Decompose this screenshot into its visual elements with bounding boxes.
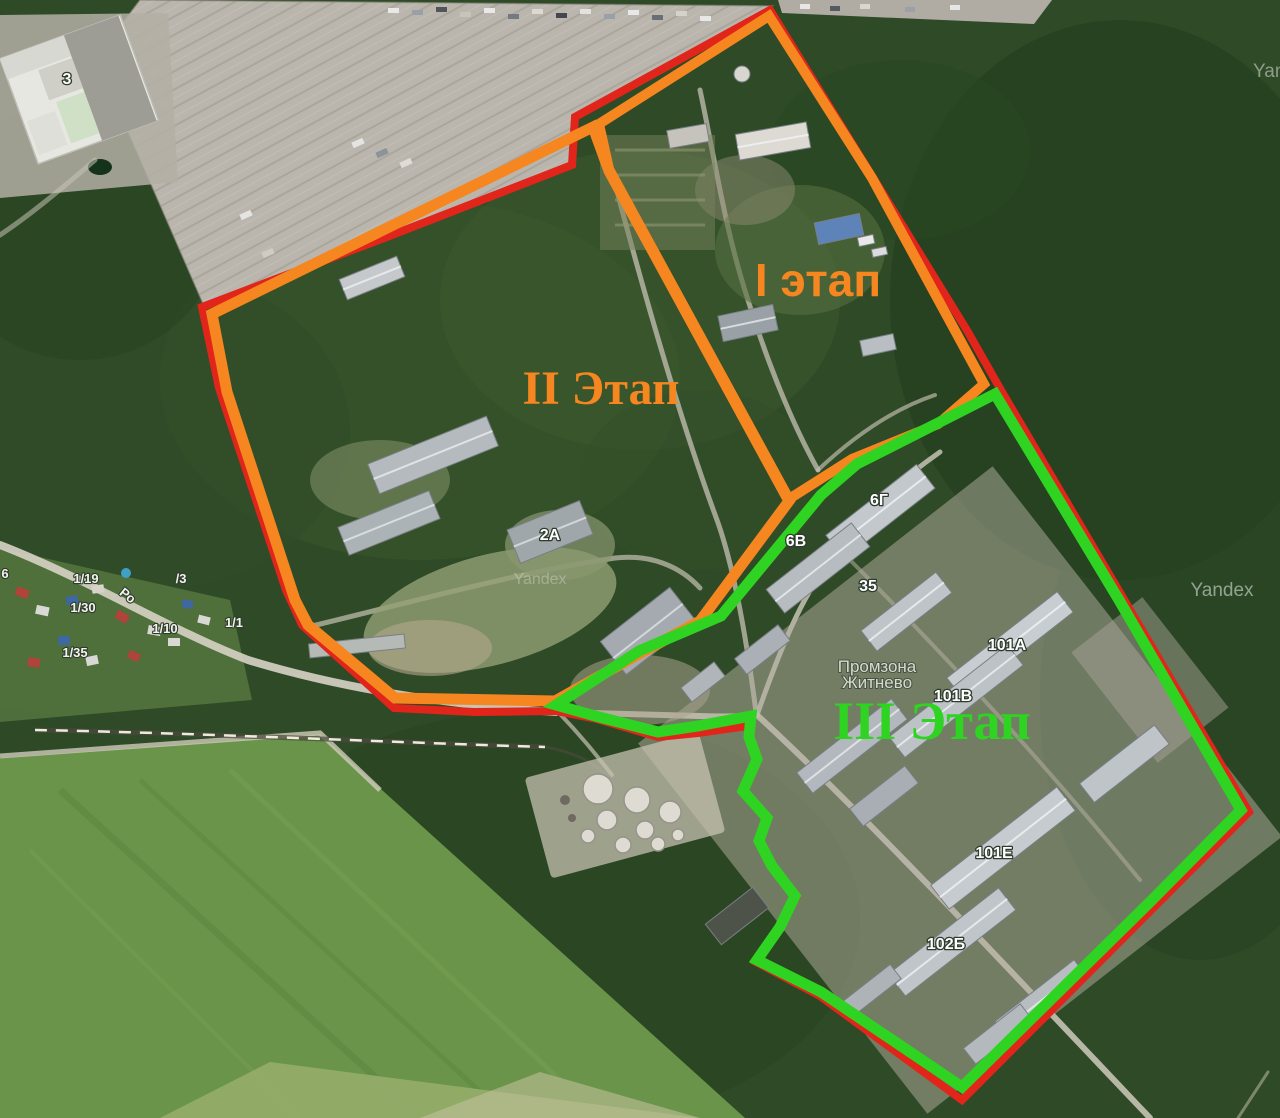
parcel-label: 6 <box>1 566 8 581</box>
parcel-label: 1/1 <box>225 615 243 630</box>
parcel-label: 1/10 <box>152 621 177 636</box>
retail-building <box>0 13 178 198</box>
phase-2-label: II Этап <box>522 362 679 415</box>
building-label: 101В <box>934 688 972 705</box>
parcel-label: 1/19 <box>73 571 98 586</box>
parcel-label: /3 <box>176 571 187 586</box>
building-label: 101А <box>988 637 1027 654</box>
building-label: 6Г <box>870 492 888 509</box>
phase-3-label: III Этап <box>833 691 1031 751</box>
satellite-map: I этапII ЭтапIII Этап32А6Г6В35101А101В10… <box>0 0 1280 1118</box>
building-label: 3 <box>63 71 72 88</box>
building-label: 102Б <box>927 936 965 953</box>
building-label: 101Е <box>975 845 1013 862</box>
yandex-watermark: Yandex <box>1190 580 1254 601</box>
parcel-label: 1/35 <box>62 645 87 660</box>
parcel-label: 1/30 <box>70 600 95 615</box>
yandex-watermark: Yandex <box>513 571 566 588</box>
building-label: 35 <box>859 578 877 595</box>
yandex-watermark: Yandex <box>1253 61 1280 82</box>
building-label: 2А <box>540 527 561 544</box>
place-label-line: Житнево <box>842 673 912 692</box>
phase-1-label: I этап <box>755 254 881 306</box>
building-label: 6В <box>786 533 806 550</box>
